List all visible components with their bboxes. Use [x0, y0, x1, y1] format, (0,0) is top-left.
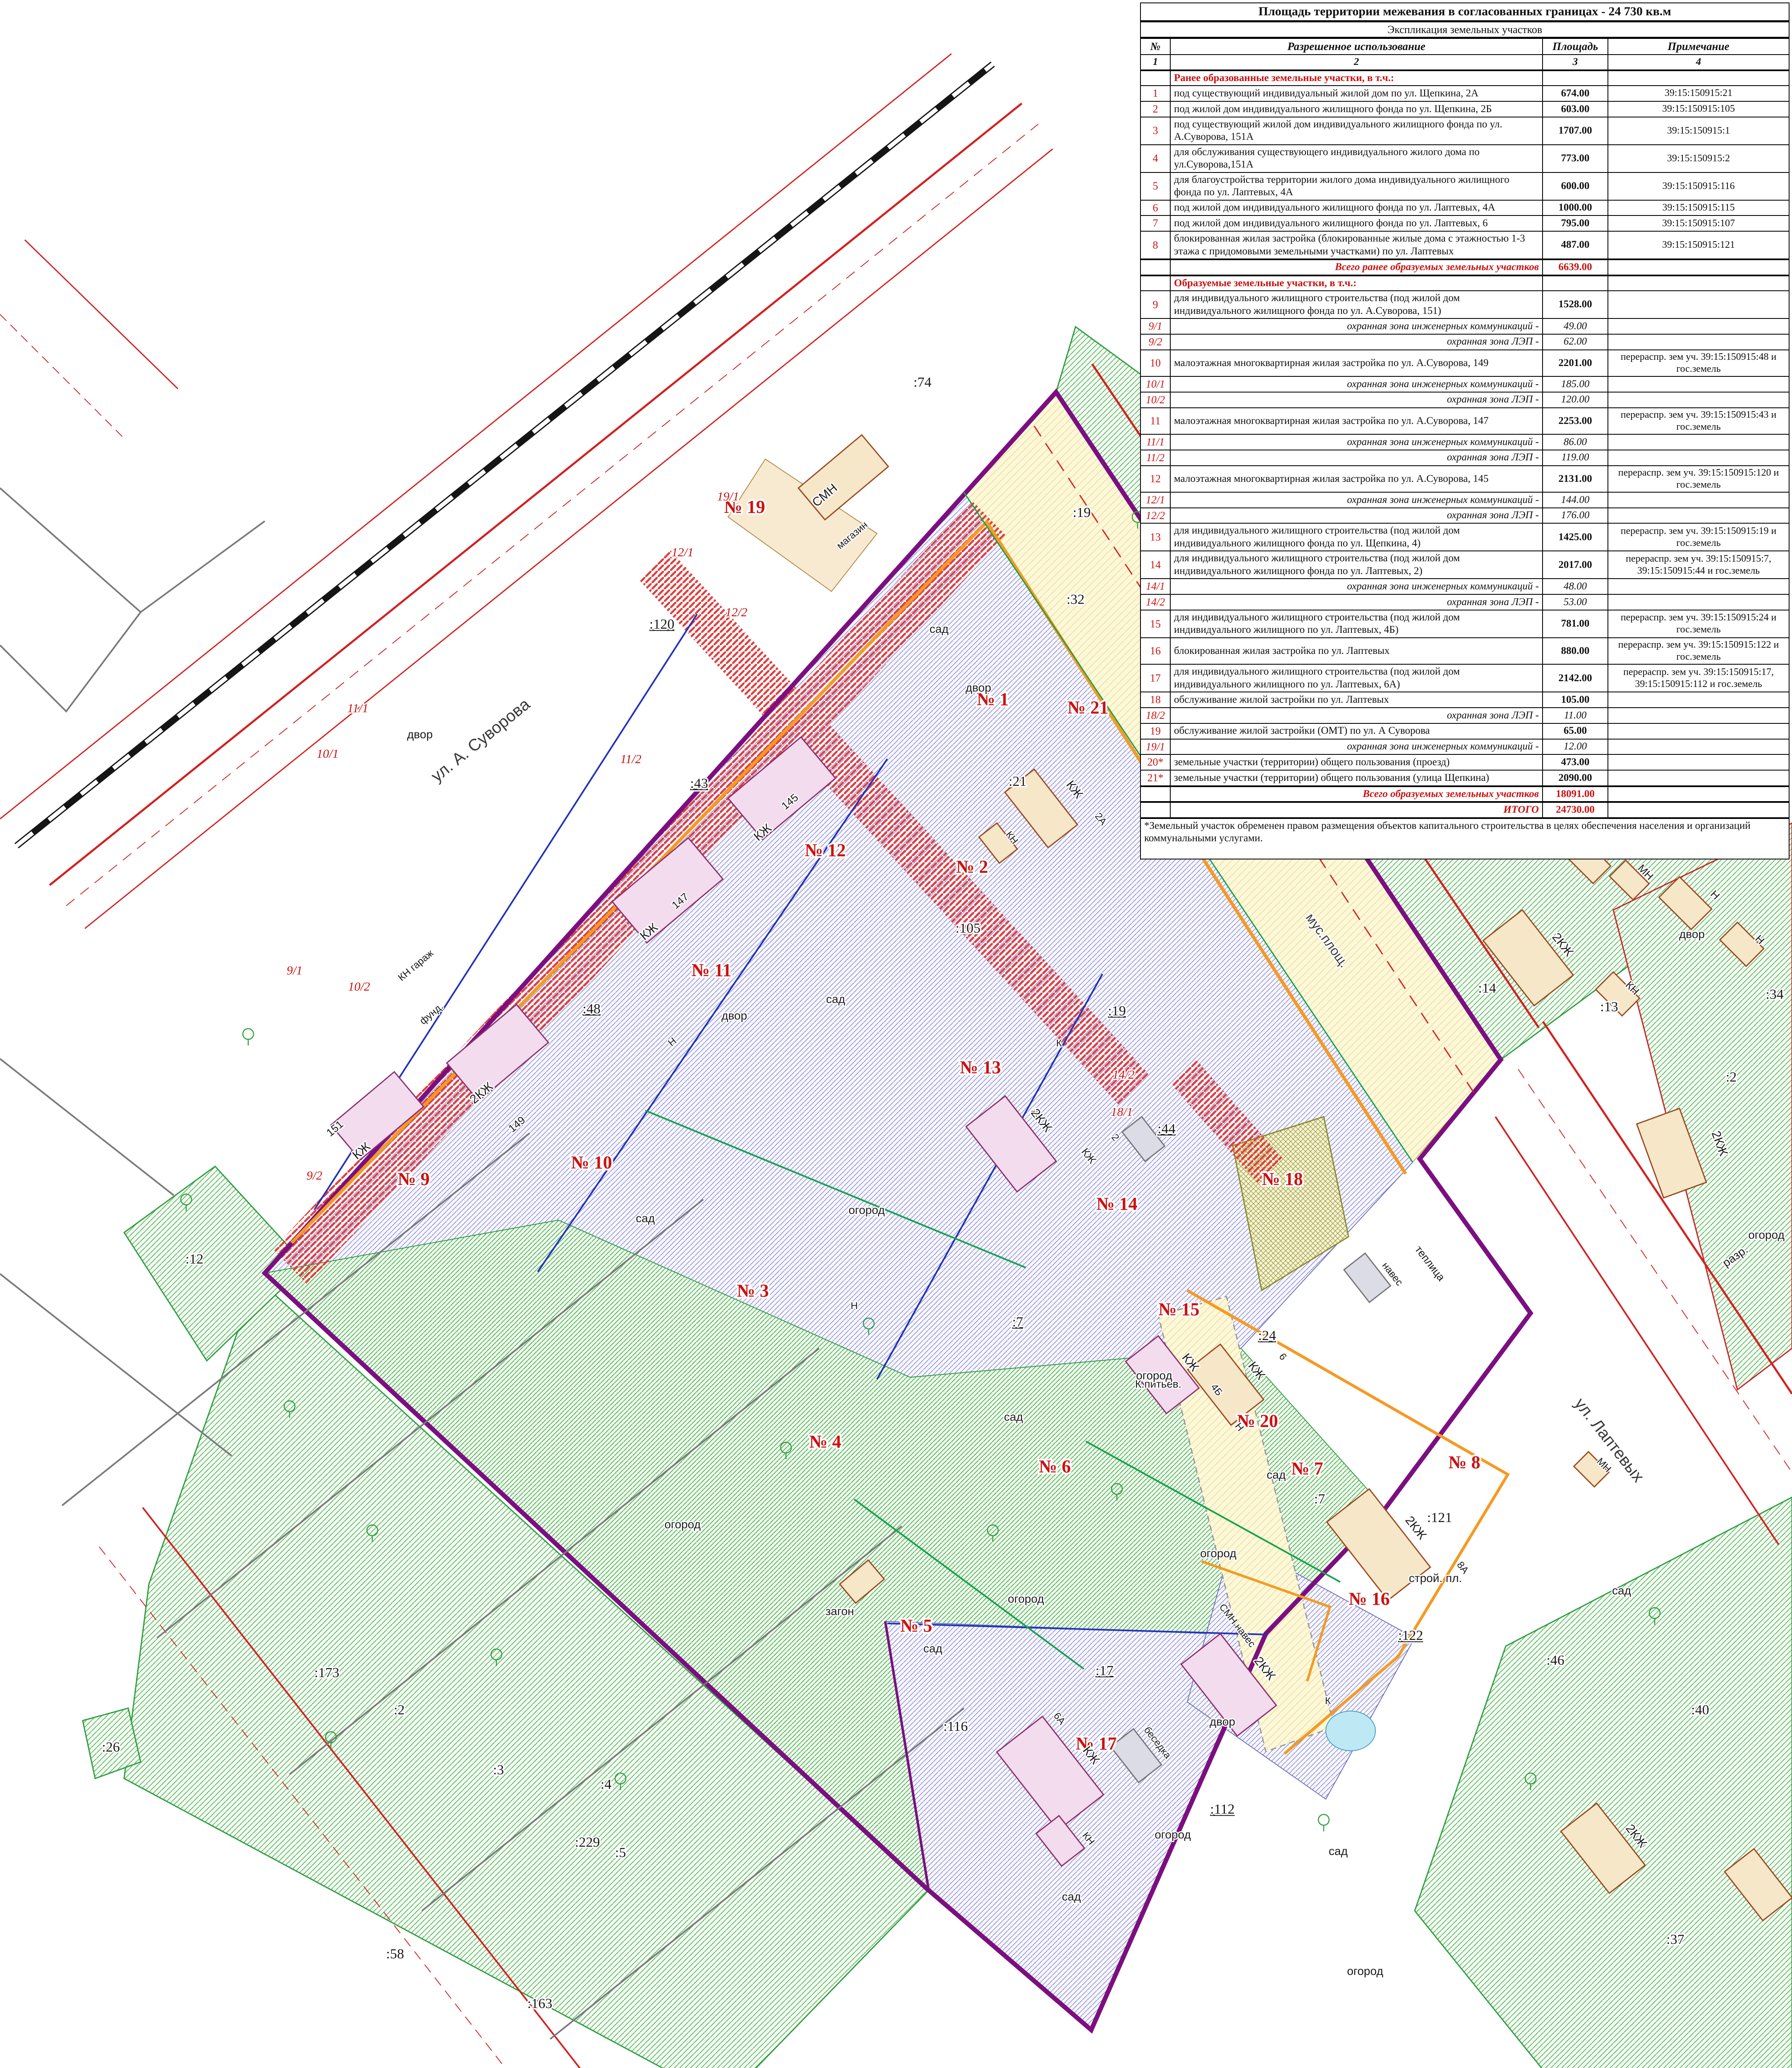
- svg-text:двор: двор: [1210, 1715, 1235, 1728]
- svg-text::163: :163: [527, 1996, 552, 2011]
- col-use: Разрешенное использование: [1170, 38, 1543, 55]
- svg-text::40: :40: [1691, 1702, 1709, 1718]
- svg-text::37: :37: [1666, 1932, 1684, 1947]
- svg-text::17: :17: [1095, 1663, 1113, 1678]
- svg-text:№ 2: № 2: [956, 857, 988, 877]
- svg-text:сад: сад: [1329, 1845, 1348, 1857]
- svg-text:двор: двор: [721, 1009, 747, 1022]
- svg-text:сад: сад: [826, 993, 845, 1005]
- svg-text::43: :43: [690, 776, 708, 791]
- svg-text::34: :34: [1766, 987, 1783, 1002]
- svg-text:№ 11: № 11: [692, 960, 732, 980]
- table-row: 5 для благоустройства территории жилого …: [1140, 172, 1789, 200]
- svg-text:огород: огород: [1748, 1228, 1785, 1241]
- svg-text:№ 8: № 8: [1448, 1452, 1480, 1472]
- table-row: ИТОГО 24730.00: [1140, 802, 1789, 818]
- svg-text::21: :21: [1009, 774, 1026, 789]
- table-row: 21* земельные участки (территории) общег…: [1140, 770, 1789, 786]
- table-row: 17 для индивидуального жилищного строите…: [1140, 664, 1789, 692]
- svg-text:10/2: 10/2: [348, 980, 370, 993]
- svg-text::19: :19: [1108, 1003, 1126, 1019]
- svg-text::26: :26: [102, 1740, 120, 1755]
- svg-text:№ 5: № 5: [900, 1616, 932, 1636]
- svg-text:огород: огород: [1347, 1965, 1383, 1977]
- svg-text:№ 3: № 3: [737, 1281, 769, 1301]
- table-title: Площадь территории межевания в согласова…: [1140, 3, 1789, 21]
- svg-text:11/1: 11/1: [347, 701, 368, 715]
- col-area: Площадь: [1543, 38, 1608, 55]
- svg-text::116: :116: [943, 1719, 968, 1734]
- svg-text:огород: огород: [1155, 1828, 1191, 1841]
- svg-text:сад: сад: [1612, 1584, 1631, 1597]
- svg-text::112: :112: [1210, 1802, 1234, 1817]
- svg-text::13: :13: [1600, 999, 1618, 1015]
- svg-text:строй. пл.: строй. пл.: [1409, 1572, 1462, 1585]
- svg-text::44: :44: [1157, 1121, 1175, 1137]
- svg-text:№ 18: № 18: [1262, 1169, 1303, 1189]
- svg-text:двор: двор: [1679, 928, 1705, 941]
- table-row: 19 обслуживание жилой застройки (ОМТ) по…: [1140, 723, 1789, 739]
- table-footnote: *Земельный участок обременен правом разм…: [1140, 818, 1789, 859]
- table-row: 11/1 охранная зона инженерных коммуникац…: [1140, 434, 1789, 450]
- table-subtitle: Экспликация земельных участков: [1140, 21, 1789, 38]
- svg-text:№ 6: № 6: [1039, 1456, 1071, 1477]
- table-row: 14/1 охранная зона инженерных коммуникац…: [1140, 579, 1789, 594]
- svg-text:К: К: [1056, 1038, 1062, 1049]
- svg-text::121: :121: [1427, 1510, 1452, 1525]
- svg-text::4: :4: [601, 1777, 611, 1792]
- svg-text::120: :120: [649, 617, 674, 632]
- table-row: 20* земельные участки (территории) общег…: [1140, 754, 1789, 770]
- table-row: Всего образуемых земельных участков 1809…: [1140, 786, 1789, 802]
- table-header-row: № Разрешенное использование Площадь Прим…: [1140, 38, 1789, 55]
- svg-text:18/1: 18/1: [1111, 1105, 1133, 1119]
- svg-text::2: :2: [394, 1702, 405, 1718]
- table-row: 9/2 охранная зона ЛЭП - 62.00: [1140, 334, 1789, 350]
- table-row: 18 обслуживание жилой застройки по ул. Л…: [1140, 692, 1789, 708]
- table-row: 9/1 охранная зона инженерных коммуникаци…: [1140, 318, 1789, 334]
- svg-text:теплица: теплица: [1413, 1243, 1448, 1283]
- svg-text::19: :19: [1073, 505, 1090, 520]
- table-footnote-row: *Земельный участок обременен правом разм…: [1140, 818, 1789, 859]
- svg-text:ул. А. Суворова: ул. А. Суворова: [428, 695, 534, 785]
- svg-text:№ 16: № 16: [1349, 1589, 1390, 1609]
- svg-text:загон: загон: [825, 1605, 854, 1618]
- table-row: 7 под жилой дом индивидуального жилищног…: [1140, 215, 1789, 231]
- table-row: 6 под жилой дом индивидуального жилищног…: [1140, 200, 1789, 216]
- table-row: Ранее образованные земельные участки, в …: [1140, 70, 1789, 86]
- table-row: 1 под существующий индивидуальный жилой …: [1140, 86, 1789, 101]
- svg-text:№ 21: № 21: [1067, 697, 1108, 718]
- svg-text::14: :14: [1478, 981, 1496, 996]
- svg-text::46: :46: [1546, 1653, 1564, 1668]
- svg-text:12/1: 12/1: [671, 546, 693, 559]
- table-row: 2 под жилой дом индивидуального жилищног…: [1140, 101, 1789, 117]
- col-note: Примечание: [1608, 38, 1789, 55]
- svg-text:сад: сад: [1062, 1890, 1081, 1903]
- svg-text::105: :105: [956, 921, 980, 936]
- svg-text:№ 13: № 13: [960, 1057, 1001, 1077]
- table-row: 12/2 охранная зона ЛЭП - 176.00: [1140, 508, 1789, 524]
- svg-text:КН гараж: КН гараж: [396, 948, 436, 983]
- svg-text:сад: сад: [1267, 1468, 1286, 1481]
- svg-text::7: :7: [1012, 1314, 1023, 1330]
- svg-text::48: :48: [582, 1001, 600, 1017]
- table-row: 10/2 охранная зона ЛЭП - 120.00: [1140, 392, 1789, 408]
- svg-text:сад: сад: [923, 1642, 942, 1655]
- svg-text:11/2: 11/2: [620, 752, 641, 766]
- svg-text:9/1: 9/1: [287, 964, 302, 977]
- svg-text::3: :3: [493, 1762, 504, 1778]
- svg-text:огород: огород: [1200, 1547, 1236, 1560]
- svg-text:двор: двор: [407, 728, 433, 741]
- sheet: { "table":{ "title":"Площадь территории …: [0, 0, 1792, 2068]
- table-row: 18/2 охранная зона ЛЭП - 11.00: [1140, 708, 1789, 723]
- svg-text::5: :5: [615, 1845, 626, 1860]
- svg-text:К: К: [1325, 1695, 1331, 1707]
- svg-text:№ 4: № 4: [809, 1431, 841, 1452]
- svg-text:№ 10: № 10: [571, 1152, 612, 1173]
- table-row: 3 под существующий жилой дом индивидуаль…: [1140, 117, 1789, 145]
- svg-text:огород: огород: [1136, 1369, 1172, 1382]
- svg-text:двор: двор: [965, 681, 991, 694]
- svg-text:огород: огород: [848, 1204, 885, 1216]
- table-row: Образуемые земельные участки, в т.ч.:: [1140, 275, 1789, 291]
- table-row: 15 для индивидуального жилищного строите…: [1140, 610, 1789, 638]
- svg-text:6: 6: [1277, 1351, 1289, 1362]
- svg-text:Н: Н: [850, 1300, 858, 1312]
- table-row: 12 малоэтажная многоквартирная жилая зас…: [1140, 466, 1789, 493]
- svg-text:сад: сад: [636, 1212, 655, 1225]
- table-row: 14 для индивидуального жилищного строите…: [1140, 551, 1789, 579]
- svg-text:сад: сад: [930, 622, 949, 635]
- svg-text::32: :32: [1066, 592, 1084, 607]
- table-row: Всего ранее образуемых земельных участко…: [1140, 259, 1789, 275]
- table-colnum-row: 1 2 3 4: [1140, 55, 1789, 70]
- svg-text::12: :12: [185, 1252, 203, 1267]
- svg-text:14/2: 14/2: [1112, 1068, 1134, 1082]
- table-row: 12/1 охранная зона инженерных коммуникац…: [1140, 492, 1789, 508]
- explication-table: Площадь территории межевания в согласова…: [1140, 2, 1790, 859]
- table-row: 4 для обслуживания существующего индивид…: [1140, 145, 1789, 172]
- table-row: 10 малоэтажная многоквартирная жилая зас…: [1140, 350, 1789, 377]
- svg-text:12/2: 12/2: [725, 606, 747, 619]
- svg-text:№ 7: № 7: [1291, 1458, 1323, 1479]
- table-row: 10/1 охранная зона инженерных коммуникац…: [1140, 376, 1789, 392]
- table-row: 11/2 охранная зона ЛЭП - 119.00: [1140, 450, 1789, 466]
- svg-text:сад: сад: [1004, 1410, 1023, 1423]
- table-row: 8 блокированная жилая застройка (блокиро…: [1140, 231, 1789, 259]
- table-row: 9 для индивидуального жилищного строител…: [1140, 291, 1789, 318]
- svg-text::74: :74: [913, 375, 931, 390]
- svg-text::229: :229: [575, 1835, 600, 1850]
- svg-text:19/1: 19/1: [717, 490, 739, 503]
- svg-text:№ 14: № 14: [1096, 1194, 1137, 1214]
- svg-text::2: :2: [1726, 1070, 1737, 1085]
- svg-text:огород: огород: [1008, 1592, 1044, 1605]
- table-row: 14/2 охранная зона ЛЭП - 53.00: [1140, 594, 1789, 610]
- table-subtitle-row: Экспликация земельных участков: [1140, 21, 1789, 38]
- table-title-row: Площадь территории межевания в согласова…: [1140, 3, 1789, 21]
- svg-text:фунд.: фунд.: [417, 1001, 445, 1027]
- svg-text:10/1: 10/1: [316, 747, 338, 761]
- svg-text::7: :7: [1314, 1491, 1325, 1507]
- table-row: 19/1 охранная зона инженерных коммуникац…: [1140, 739, 1789, 755]
- table-row: 13 для индивидуального жилищного строите…: [1140, 523, 1789, 551]
- svg-text:огород: огород: [664, 1518, 701, 1531]
- svg-text:№ 9: № 9: [398, 1169, 429, 1189]
- svg-text::58: :58: [386, 1946, 404, 1962]
- table-row: 11 малоэтажная многоквартирная жилая зас…: [1140, 408, 1789, 435]
- explication-table-body: Площадь территории межевания в согласова…: [1140, 3, 1789, 859]
- table-row: 16 блокированная жилая застройка по ул. …: [1140, 638, 1789, 665]
- svg-text::173: :173: [314, 1665, 339, 1680]
- svg-text:№ 15: № 15: [1158, 1299, 1199, 1319]
- col-num: №: [1140, 38, 1170, 55]
- svg-text:№ 12: № 12: [805, 840, 846, 860]
- svg-text:9/2: 9/2: [307, 1169, 322, 1182]
- svg-text::24: :24: [1258, 1328, 1276, 1343]
- svg-text::122: :122: [1398, 1628, 1423, 1643]
